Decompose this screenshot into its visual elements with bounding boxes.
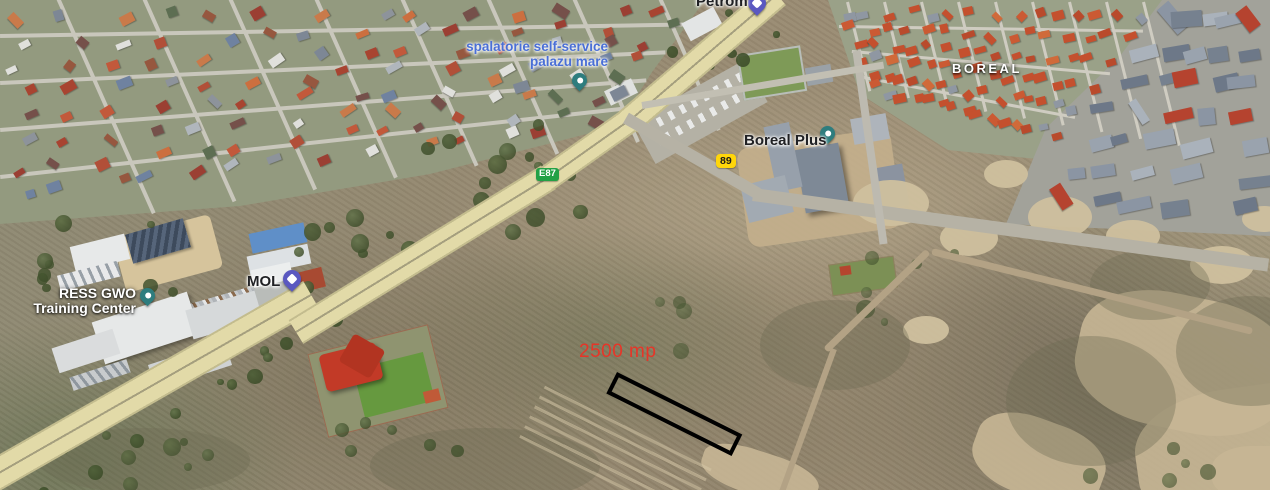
label-carwash-line1: spalatorie self-service: [430, 39, 608, 54]
map-texture: [345, 445, 357, 457]
map-texture: [1197, 107, 1216, 125]
map-texture: [667, 46, 678, 57]
map-texture: [324, 222, 335, 233]
label-ress-line2: Training Center: [10, 301, 136, 316]
map-texture: [55, 215, 73, 233]
map-texture: [263, 353, 273, 363]
map-texture: [655, 297, 665, 307]
label-petrom[interactable]: Petrom: [696, 0, 748, 10]
map-texture: [1024, 95, 1034, 103]
map-texture: [451, 445, 463, 457]
map-texture: [573, 205, 587, 219]
map-texture: [1200, 464, 1216, 480]
map-texture: [37, 253, 53, 269]
label-carwash-line2: palazu mare: [430, 54, 608, 69]
map-texture: [673, 343, 689, 359]
label-boreal-plus[interactable]: Boreal Plus: [744, 132, 827, 149]
map-texture: [442, 134, 457, 149]
map-texture: [38, 268, 51, 281]
map-texture: [39, 487, 49, 490]
map-texture: [121, 450, 136, 465]
map-texture: [881, 318, 889, 326]
map-texture: [335, 423, 349, 437]
map-texture: [1181, 459, 1190, 468]
map-texture: [227, 379, 238, 390]
map-texture: [479, 177, 490, 188]
map-texture: [773, 31, 779, 37]
map-texture: [304, 223, 322, 241]
route-badge-89: 89: [716, 154, 736, 168]
map-texture: [170, 408, 181, 419]
map-texture: [1038, 123, 1048, 131]
map-texture: [1052, 81, 1063, 91]
map-texture: [424, 439, 435, 450]
map-texture: [1212, 446, 1270, 490]
map-texture: [421, 142, 434, 155]
map-texture: [184, 463, 192, 471]
map-texture: [865, 251, 879, 265]
map-texture: [984, 160, 1028, 188]
map-texture: [217, 379, 223, 385]
map-texture: [1068, 167, 1086, 180]
map-texture: [526, 208, 545, 227]
map-texture: [351, 234, 370, 253]
map-texture: [903, 316, 949, 344]
map-texture: [839, 265, 851, 275]
label-ress-gwo[interactable]: RESS GWO Training Center: [10, 286, 136, 316]
map-texture: [289, 165, 556, 344]
map-texture: [505, 224, 522, 241]
label-mol[interactable]: MOL: [247, 273, 280, 290]
map-texture: [1167, 442, 1179, 454]
map-texture: [123, 477, 138, 490]
map-texture: [386, 231, 394, 239]
satellite-map[interactable]: 2500 mp spalatorie self-service palazu m…: [0, 0, 1270, 490]
route-badge-e87: E87: [536, 168, 559, 181]
map-texture: [533, 119, 545, 131]
map-texture: [180, 438, 188, 446]
map-texture: [939, 23, 949, 33]
map-texture: [861, 287, 872, 298]
map-texture: [346, 209, 364, 227]
map-texture: [247, 369, 263, 385]
map-texture: [280, 337, 293, 350]
map-texture: [736, 53, 750, 67]
map-texture: [1170, 10, 1202, 28]
label-ress-line1: RESS GWO: [10, 286, 136, 301]
map-texture: [147, 221, 154, 228]
map-terrain-decoration: [0, 0, 1270, 490]
map-texture: [488, 155, 507, 174]
map-texture: [1083, 468, 1098, 483]
map-texture: [1006, 336, 1176, 466]
map-texture: [360, 417, 372, 429]
map-texture: [387, 425, 397, 435]
label-carwash[interactable]: spalatorie self-service palazu mare: [430, 39, 608, 69]
label-district-boreal[interactable]: BOREAL: [952, 61, 1022, 76]
parcel-area-label: 2500 mp: [579, 341, 656, 363]
map-texture: [525, 152, 534, 161]
